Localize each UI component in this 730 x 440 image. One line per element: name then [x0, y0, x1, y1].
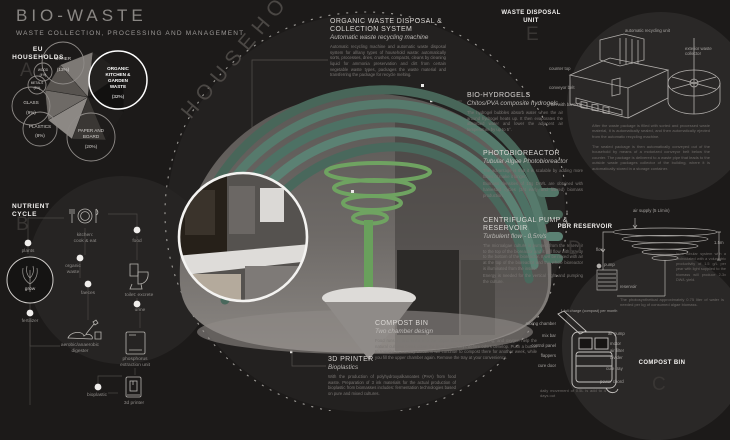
compost-label-control: control panel [518, 343, 556, 348]
annotation-subtitle: Bioplastics [328, 365, 456, 372]
pie-value-glass: (9%) [26, 110, 36, 115]
section-letter-d: D [568, 238, 582, 260]
pbr-caption: The photosynthetical approximately 0.75 … [620, 297, 724, 308]
node-label-digester-2: digester [71, 348, 88, 354]
compost-label-top: 1 full charge (compost) per month [550, 309, 628, 314]
node-label-phosphorus-2: extraction unit [120, 362, 151, 368]
wdu-label-counter: counter top [549, 66, 583, 71]
annotation-body-2: Energy is needed for the vertical flight… [483, 273, 583, 284]
pie-value-metals: (3%) [34, 86, 41, 90]
compost-label-curetray: cure tray [606, 366, 638, 371]
node-label-digester-1: aerobic/anaerobic [61, 342, 100, 348]
compost-label-curedoor: cure door [520, 363, 556, 368]
wdu-label-collector: exterior waste collector [685, 46, 723, 56]
annotation-subtitle: Two chamber design [375, 329, 537, 336]
pie-label-organic-1: ORGANIC [107, 66, 129, 71]
compost-label-mixbar: mix bar [526, 333, 556, 338]
node-label-kitchen-1: kitchen: [77, 232, 94, 238]
pie-label-other: OTHER [55, 56, 72, 61]
pie-label-wood: WOOD [38, 68, 49, 72]
annotation-subtitle: Tubular Algae Photobioreactor [483, 159, 583, 166]
pie-bubble-plastics [23, 112, 57, 146]
pbr-label-reservoir: reservoir [620, 284, 650, 289]
node-label-3d-printer: 3d printer [124, 400, 145, 406]
page-title: BIO-WASTE [16, 6, 244, 26]
compost-label-motor: motor [610, 341, 642, 346]
annotation-compost-bin: COMPOST BIN Two chamber design Food runs… [375, 320, 537, 361]
nutrient-cycle-diagram: plants kitchen: cook & eat food organic … [0, 200, 180, 411]
annotation-title: COMPOST BIN [375, 320, 537, 328]
pbr-side-note: In a tubular system with a recirculated … [676, 252, 726, 283]
annotation-3d-printer: 3D PRINTER Bioplastics With the producti… [328, 356, 456, 397]
node-label-bioplastic: bioplastic [87, 392, 108, 398]
grow-plant-illustration [7, 257, 53, 303]
pie-value-plastics: (8%) [35, 133, 45, 138]
annotation-photobioreactor: PHOTOBIOREACTOR Tubular Algae Photobiore… [483, 150, 583, 198]
node-label-organic-2: waste [67, 269, 80, 275]
node-label-food: food [132, 238, 142, 244]
pie-value-paper: (20%) [85, 144, 98, 149]
pbr-label-pump: pump [604, 262, 624, 267]
eu-waste-pie-chart: OTHER (13%) WOOD (4%) METALS (3%) GLASS … [10, 40, 180, 210]
compost-label-power: power chord [600, 379, 628, 384]
node-label-kitchen-2: cook & eat [74, 238, 97, 244]
printer-3d-icon [126, 377, 141, 397]
section-letter-c: C [652, 374, 666, 396]
node-label-organic-1: organic [65, 263, 81, 269]
annotation-subtitle: Automatic waste recycling machine [330, 35, 446, 42]
compost-panel-label: COMPOST BIN [636, 360, 688, 368]
section-letter-e: E [526, 24, 539, 46]
pie-label-metals: METALS [31, 81, 44, 85]
pie-value-organic: (32%) [112, 94, 125, 99]
pie-label-plastics: PLASTICS [29, 124, 51, 129]
page-subtitle: WASTE COLLECTION, PROCESSING AND MANAGEM… [16, 30, 244, 37]
pbr-label-dimension: 1.5m [714, 240, 730, 245]
toilet-icon [130, 264, 148, 289]
pie-label-organic-2: KITCHEN & [105, 72, 131, 77]
wdu-diagram [548, 28, 728, 123]
annotation-title: ORGANIC WASTE DISPOSAL & COLLECTION SYST… [330, 18, 446, 34]
annotation-title: PHOTOBIOREACTOR [483, 150, 583, 158]
annotation-body: The advantage is that it is scalable by … [483, 168, 583, 179]
wdu-label-bin: bin with barcode [551, 102, 585, 107]
annotation-body: Automatic recycling machine and automati… [330, 44, 446, 78]
wdu-body-1: After the waste package is filled with s… [592, 123, 710, 139]
pie-bubble-glass [12, 87, 50, 125]
wdu-label-conveyor: conveyor belt [549, 85, 583, 90]
pie-label-paper-1: PAPER AND [78, 128, 105, 133]
pbr-label-air: air supply (5 L/min) [633, 208, 705, 213]
annotation-body: With the production of polyhydroxyalkano… [328, 374, 456, 397]
pie-label-paper-2: BOARD [83, 134, 100, 139]
wdu-body-2: The sealed package is then automatically… [592, 144, 710, 171]
compost-label-divider: divider [610, 355, 642, 360]
pie-value-other: (13%) [57, 67, 70, 72]
annotation-organic-waste-system: ORGANIC WASTE DISPOSAL & COLLECTION SYST… [330, 18, 446, 78]
compost-label-mixing: mixing chamber [520, 321, 556, 326]
node-label-toilet: toilet: excrete [125, 292, 154, 298]
node-label-plants: plants [22, 248, 35, 254]
compost-label-flappers: flappers [526, 353, 556, 358]
digester-icon [68, 320, 101, 339]
node-label-phosphorus-1: phosphorus [122, 356, 148, 362]
pbr-label-flow: flow [596, 247, 616, 252]
node-label-fertilizer: fertilizer [22, 318, 39, 324]
annotation-body-2: Biomass densities of 10g DW/L are obtain… [483, 181, 583, 198]
phosphorus-unit-icon [126, 332, 145, 354]
kitchen-cutlery-icon [70, 209, 98, 223]
compost-label-airpump: air pump [608, 331, 640, 336]
node-label-grow: grow [25, 286, 36, 292]
compost-caption: daily movement of 0.5L is add to 4 days … [540, 388, 606, 399]
pie-value-wood: (4%) [40, 73, 47, 77]
compost-label-airfilter: air filter [610, 348, 642, 353]
pie-label-organic-4: WASTE [110, 84, 126, 89]
node-label-urine: urine [135, 307, 146, 313]
algae-stream [364, 220, 373, 296]
pie-label-organic-3: GARDEN [108, 78, 129, 83]
annotation-title: 3D PRINTER [328, 356, 456, 364]
pie-label-glass: GLASS [23, 100, 38, 105]
node-label-faeces: faeces [81, 290, 96, 296]
wdu-label-unit: automatic recycling unit [625, 28, 675, 33]
